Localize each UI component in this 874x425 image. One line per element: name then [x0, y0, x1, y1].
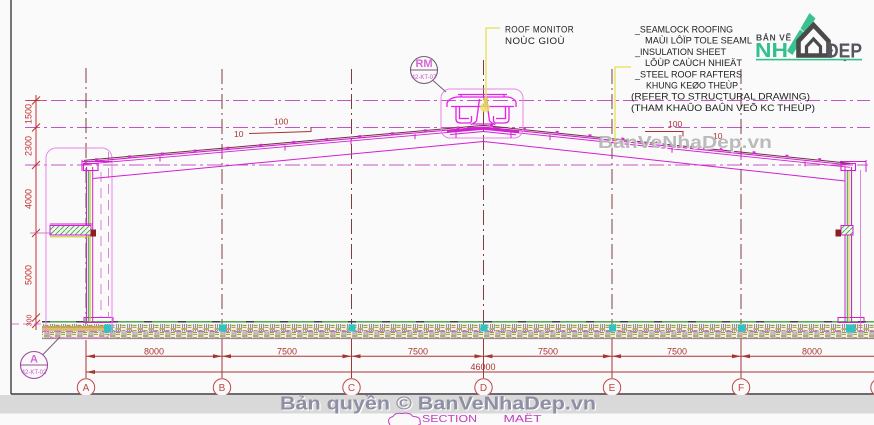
svg-text:_SEAMLOCK ROOFING: _SEAMLOCK ROOFING	[634, 25, 733, 35]
svg-text:B: B	[219, 383, 226, 394]
svg-text:300: 300	[27, 315, 34, 327]
svg-text:ROOF MONITOR: ROOF MONITOR	[505, 25, 574, 35]
svg-text:7500: 7500	[408, 347, 428, 357]
svg-text:8000: 8000	[144, 347, 164, 357]
svg-text:42-KT-02: 42-KT-02	[22, 370, 47, 376]
svg-text:7500: 7500	[277, 347, 297, 357]
svg-text:NH: NH	[755, 40, 788, 62]
svg-text:LÔÙP CAÙCH NHIEÄT: LÔÙP CAÙCH NHIEÄT	[645, 58, 743, 68]
svg-text:RM: RM	[415, 58, 432, 70]
svg-text:10: 10	[234, 129, 244, 139]
svg-text:7500: 7500	[538, 347, 558, 357]
svg-text:C: C	[348, 383, 355, 394]
svg-text:100: 100	[668, 119, 682, 129]
svg-text:(REFER TO STRUCTURAL DRAWING): (REFER TO STRUCTURAL DRAWING)	[631, 92, 810, 102]
svg-text:A: A	[83, 383, 90, 394]
svg-text:42-KT-07: 42-KT-07	[412, 75, 437, 81]
svg-text:8000: 8000	[802, 347, 822, 357]
svg-text:MAÙI LÔÏP TOLE SEAML: MAÙI LÔÏP TOLE SEAML	[645, 36, 752, 46]
svg-text:(THAM KHAÛO BAÛN VEÕ KC THEÙP): (THAM KHAÛO BAÛN VEÕ KC THEÙP)	[631, 103, 815, 113]
svg-text:D: D	[480, 383, 487, 394]
svg-text:5000: 5000	[24, 265, 34, 285]
svg-text:100: 100	[274, 117, 288, 127]
svg-text:7500: 7500	[667, 347, 687, 357]
svg-text:BanVeNhaDep.vn: BanVeNhaDep.vn	[598, 132, 772, 152]
svg-text:NOÙC GIOÙ: NOÙC GIOÙ	[505, 36, 565, 46]
svg-text:F: F	[738, 383, 744, 394]
svg-text:_INSULATION SHEET: _INSULATION SHEET	[634, 47, 726, 57]
svg-text:4000: 4000	[24, 189, 34, 209]
svg-text:A: A	[30, 354, 38, 366]
svg-text:MAËT: MAËT	[504, 413, 543, 425]
svg-text:46000: 46000	[470, 362, 495, 372]
svg-text:1500: 1500	[24, 104, 34, 124]
svg-text:E: E	[609, 383, 616, 394]
svg-text:Bản quyền © BanVeNhaDep.vn: Bản quyền © BanVeNhaDep.vn	[280, 394, 596, 414]
svg-text:2300: 2300	[24, 136, 34, 156]
svg-text:_STEEL ROOF RAFTERS: _STEEL ROOF RAFTERS	[634, 69, 742, 79]
svg-text:KHUNG KEØO THEÙP: KHUNG KEØO THEÙP	[646, 81, 738, 91]
svg-text:SECTION: SECTION	[422, 413, 477, 425]
